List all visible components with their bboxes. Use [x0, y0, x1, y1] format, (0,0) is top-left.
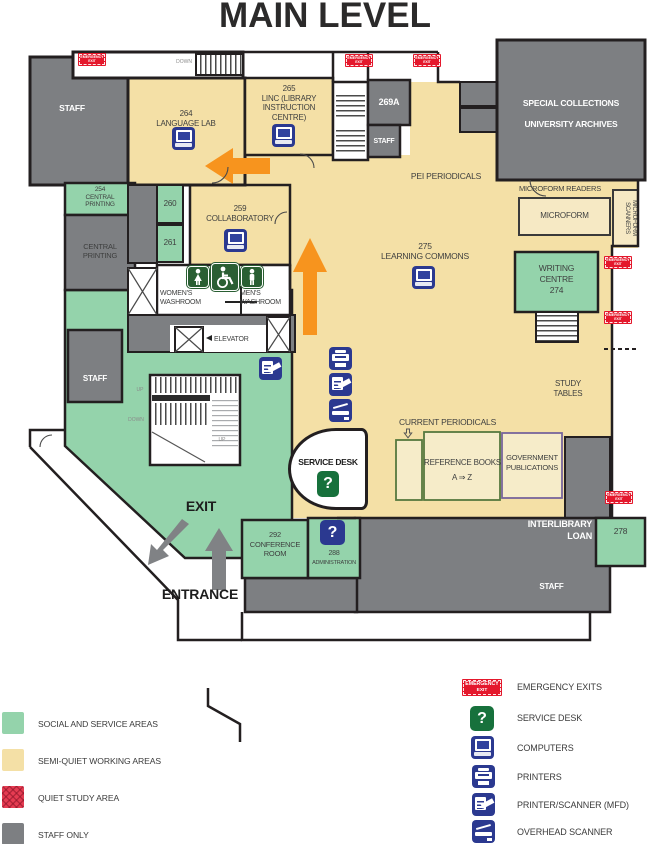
gray-column-right	[565, 437, 610, 518]
emergency-exit-badge: EMERGENCYEXIT	[604, 256, 632, 269]
legend-label-social: SOCIAL AND SERVICE AREAS	[38, 719, 158, 729]
label-service-desk: SERVICE DESK	[297, 457, 359, 467]
room-staff-mid	[68, 330, 122, 402]
label-elevator: ELEVATOR	[206, 335, 266, 345]
overhead-scanner-icon	[329, 399, 352, 422]
legend-label-staff: STAFF ONLY	[38, 830, 89, 840]
stairs-hatch	[336, 128, 365, 152]
computer-icon	[412, 266, 435, 289]
computer-icon	[224, 229, 247, 252]
gray-room-a	[460, 82, 497, 106]
label-reference-books: REFERENCE BOOKS A ⇒ Z	[424, 455, 500, 485]
emergency-exit-badge: EMERGENCYEXIT	[345, 54, 373, 67]
stairs-writing	[536, 312, 578, 342]
computer-icon	[272, 124, 295, 147]
legend-label-quiet: QUIET STUDY AREA	[38, 793, 119, 803]
label-staff-269: STAFF	[368, 137, 400, 147]
label-central-printing: CENTRAL PRINTING	[65, 242, 135, 260]
label-exit: EXIT	[171, 501, 231, 511]
label-special-collections: SPECIAL COLLECTIONS UNIVERSITY ARCHIVES	[500, 93, 642, 135]
administration-question-icon: ?	[320, 520, 345, 545]
legend-label-printer-scanner: PRINTER/SCANNER (MFD)	[517, 800, 629, 810]
label-linc: 265 LINC (LIBRARY INSTRUCTION CENTRE)	[247, 84, 331, 122]
elevator-arrow-icon	[206, 335, 212, 341]
down-outline-arrow-icon	[403, 428, 413, 439]
printer-icon	[329, 347, 352, 370]
gray-room-b	[460, 108, 497, 132]
label-microform-scanners: MICROFORM SCANNERS	[615, 192, 637, 244]
label-down-2: DOWN	[124, 417, 148, 423]
womens-washroom-icon	[187, 266, 209, 288]
emergency-exit-badge: EMERGENCYEXIT	[462, 679, 502, 696]
label-government-publications: GOVERNMENT PUBLICATIONS	[502, 453, 562, 473]
label-conference-room: 292 CONFERENCE ROOM	[242, 530, 308, 559]
legend-swatch-staff	[2, 823, 24, 844]
legend-swatch-quiet	[2, 786, 24, 808]
legend-label-service-desk: SERVICE DESK	[517, 713, 582, 723]
label-entrance: ENTRANCE	[155, 589, 245, 599]
emergency-exit-badge: EMERGENCYEXIT	[78, 53, 106, 66]
emergency-exit-badge: EMERGENCYEXIT	[604, 311, 632, 324]
legend-label-computers: COMPUTERS	[517, 743, 574, 753]
service-desk-icon: ?	[317, 471, 339, 497]
label-278: 278	[596, 526, 645, 536]
label-study-tables: STUDY TABLES	[538, 379, 598, 399]
label-administration: ADMINISTRATION	[301, 558, 367, 568]
accessible-washroom-icon	[211, 263, 239, 291]
stairs-hatch	[336, 95, 365, 119]
legend-swatch-social	[2, 712, 24, 734]
printer-scanner-icon	[259, 357, 282, 380]
printer-icon	[472, 765, 495, 788]
label-260: 260	[157, 199, 183, 209]
label-up-1: UP	[131, 387, 149, 393]
label-current-periodicals: CURRENT PERIODICALS	[395, 417, 500, 427]
overhead-scanner-icon	[472, 820, 495, 843]
label-learning-commons: 275 LEARNING COMMONS	[375, 241, 475, 261]
label-microform: MICROFORM	[519, 211, 610, 221]
computer-icon	[471, 736, 494, 759]
label-staff-bottom: STAFF	[524, 582, 579, 592]
stairs-landing	[152, 395, 210, 401]
stairs-hatch	[152, 403, 210, 425]
label-interlibrary-loan: INTERLIBRARY LOAN	[500, 519, 592, 542]
label-pei-periodicals: PEI PERIODICALS	[396, 171, 496, 181]
label-collaboratory: 259 COLLABORATORY	[190, 204, 290, 224]
legend-label-semi-quiet: SEMI-QUIET WORKING AREAS	[38, 756, 161, 766]
label-mens-washroom: MEN'S WASHROOM	[240, 289, 290, 307]
current-periodicals-shelf	[396, 440, 422, 500]
label-writing-centre: WRITING CENTRE 274	[515, 263, 598, 296]
label-up-2: UP	[214, 437, 230, 443]
mens-washroom-icon	[241, 266, 263, 288]
emergency-exit-badge: EMERGENCYEXIT	[605, 491, 633, 504]
legend-label-emergency-exits: EMERGENCY EXITS	[517, 682, 602, 692]
label-staff-mid: STAFF	[68, 374, 122, 384]
legend-swatch-semi-quiet	[2, 749, 24, 771]
printer-scanner-icon	[472, 793, 495, 816]
label-254-central-printing: 254 CENTRAL PRINTING	[65, 186, 135, 209]
service-desk-icon: ?	[470, 706, 494, 731]
printer-scanner-icon	[329, 373, 352, 396]
label-down-top: DOWN	[158, 59, 192, 65]
staff-bottom-left-block	[245, 578, 357, 612]
label-261: 261	[157, 238, 183, 248]
stairs-hatch	[152, 377, 238, 393]
legend-label-overhead-scanner: OVERHEAD SCANNER	[517, 827, 612, 837]
emergency-exit-badge: EMERGENCYEXIT	[413, 54, 441, 67]
label-language-lab: 264 LANGUAGE LAB	[136, 109, 236, 129]
label-womens-washroom: WOMEN'S WASHROOM	[160, 289, 212, 307]
label-microform-readers: MICROFORM READERS	[508, 184, 612, 194]
stairs-down-top	[196, 54, 243, 75]
legend-label-printers: PRINTERS	[517, 772, 562, 782]
label-staff-top-left: STAFF	[42, 103, 102, 113]
computer-icon	[172, 127, 195, 150]
floor-plan-page: { "title": "MAIN LEVEL", "colors": { "so…	[0, 0, 650, 844]
label-269a: 269A	[368, 97, 410, 107]
